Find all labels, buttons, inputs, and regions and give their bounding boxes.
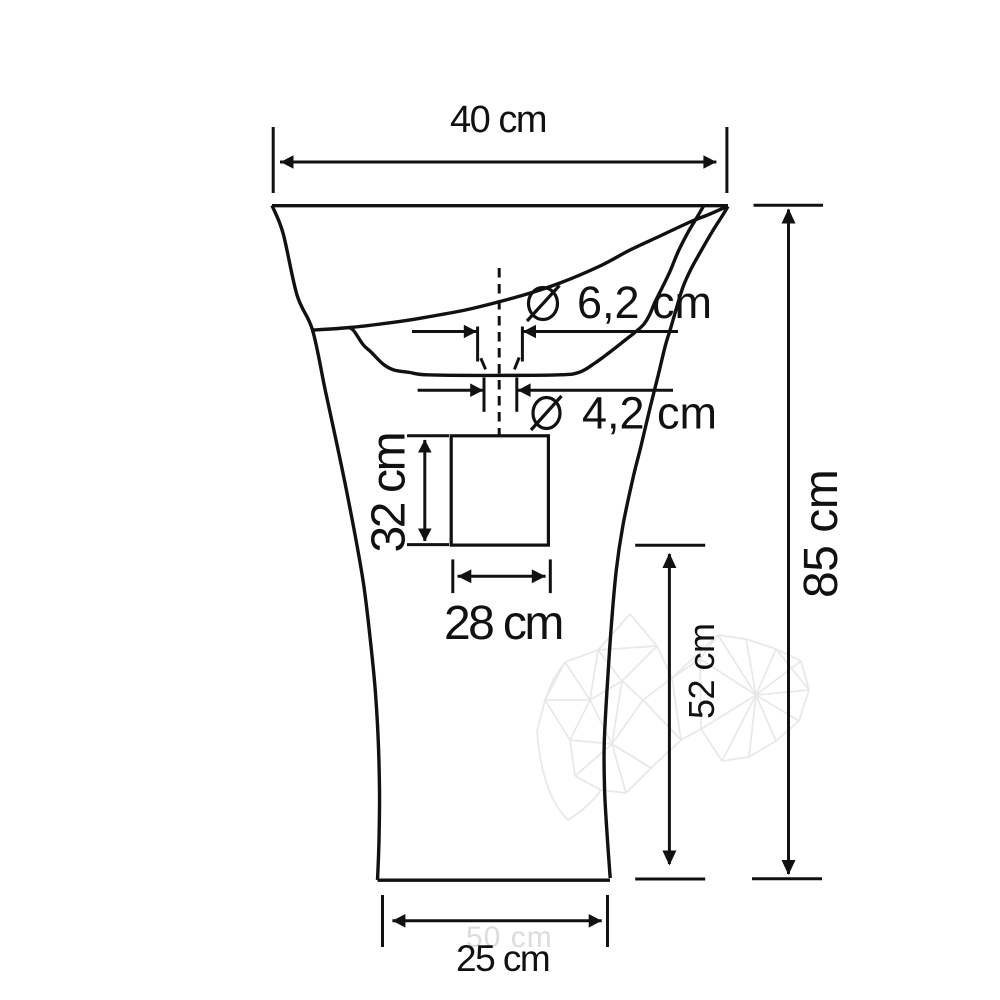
svg-text:85 cm: 85 cm (795, 470, 848, 598)
svg-text:52 cm: 52 cm (681, 623, 722, 719)
svg-text:6,2 cm: 6,2 cm (577, 277, 712, 328)
svg-text:40 cm: 40 cm (450, 99, 546, 141)
svg-text:4,2 cm: 4,2 cm (582, 388, 717, 439)
svg-text:25 cm: 25 cm (456, 938, 549, 979)
svg-text:32 cm: 32 cm (363, 434, 416, 553)
svg-text:28 cm: 28 cm (444, 597, 562, 650)
